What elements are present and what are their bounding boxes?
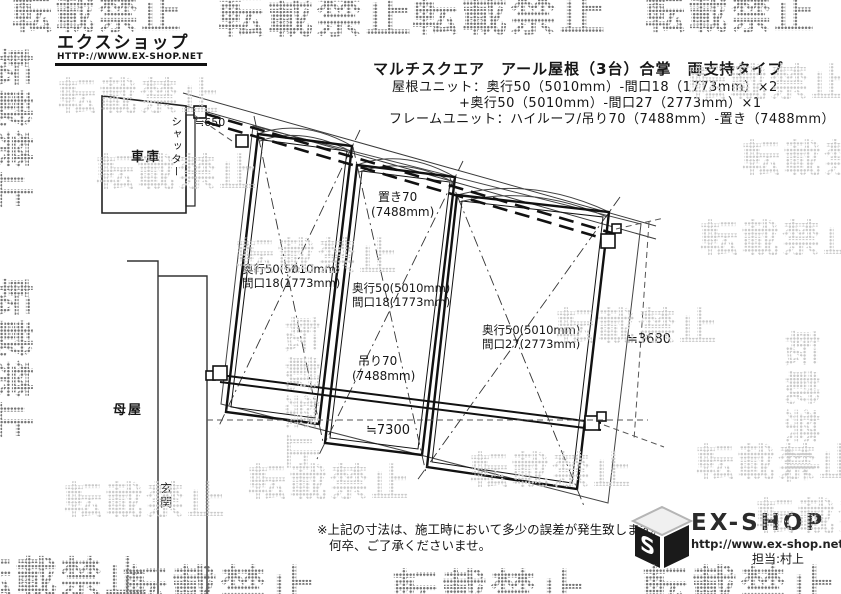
frame-unit-spec: フレームユニット：ハイルーフ/吊り70（7488mm）-置き（7488mm） [389, 113, 835, 128]
panel1-depth-label: 奥行50(5010mm) [242, 263, 340, 276]
shutter-label: シャッター [170, 116, 182, 179]
bottom-beam-size-label: (7488mm) [352, 370, 415, 384]
dim-650-label: ≒650 [195, 117, 225, 130]
roof-unit-spec-1: 屋根ユニット：奥行50（5010mm）-間口18（1773mm）×2 [392, 81, 778, 96]
house-label: 母屋 [113, 404, 143, 419]
drawing-page: エクスショップ HTTP://WWW.EX-SHOP.NET マルチスクエア ア… [0, 0, 841, 594]
panel3-width-label: 間口27(2773mm) [482, 338, 580, 351]
garage-label: 車庫 [131, 151, 161, 166]
roof-thin-outline [221, 126, 641, 503]
ex-shop-brand-text: EX-SHOP [691, 510, 825, 536]
entrance-label: 玄関 [158, 482, 172, 510]
shop-logo-url: HTTP://WWW.EX-SHOP.NET [57, 52, 203, 62]
house-wall-lines [127, 261, 207, 594]
panel1-width-label: 間口18(1773mm) [242, 277, 340, 290]
contact-person: 担当:村上 [752, 553, 804, 567]
panel3-depth-label: 奥行50(5010mm) [482, 324, 580, 337]
panel-diagonal-braces [218, 116, 620, 506]
ex-shop-url: http://www.ex-shop.net [691, 538, 841, 551]
dim-7300-label: ≒7300 [366, 424, 410, 439]
logo-underline-bar [55, 63, 207, 66]
top-beam-size-label: (7488mm) [371, 206, 434, 220]
top-beam-oki [206, 114, 612, 241]
panel2-width-label: 間口18(1773mm) [352, 296, 450, 309]
shop-logo-text: エクスショップ [57, 34, 190, 54]
panel2-depth-label: 奥行50(5010mm) [352, 282, 450, 295]
ex-shop-cube-icon: S [631, 505, 693, 573]
bottom-beam-label: 吊り70 [358, 355, 397, 369]
roof-unit-spec-2: +奥行50（5010mm）-間口27（2773mm）×1 [459, 97, 762, 112]
dim-3680-label: ≒3680 [627, 333, 671, 348]
shutter-rail [186, 115, 195, 206]
disclaimer-line-1: ※上記の寸法は、施工時において多少の誤差が発生致します。 [317, 523, 663, 537]
disclaimer-line-2: 何卒、ご了承くださいませ。 [329, 539, 491, 553]
product-title: マルチスクエア アール屋根（3台）合掌 両支持タイプ [373, 61, 784, 78]
top-beam-label: 置き70 [378, 191, 417, 205]
